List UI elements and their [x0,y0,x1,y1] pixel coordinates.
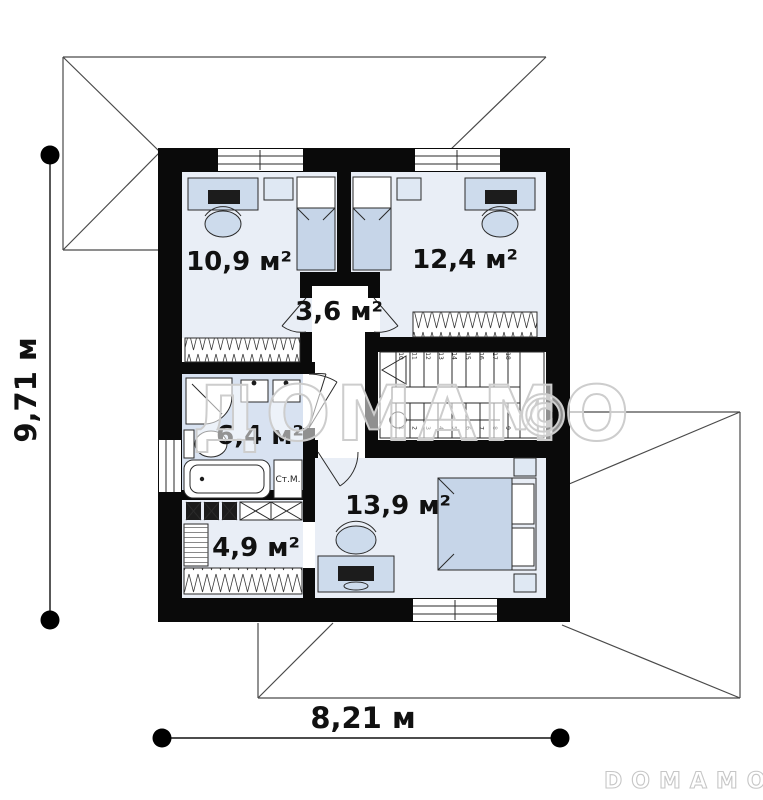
room-label-wardrobe: 4,9 м² [212,533,300,563]
closet-bedroom2-hatch [413,312,537,337]
laptop-1 [208,190,240,204]
dimension-width: 8,21 м [153,701,570,748]
stair-step-number: 17 [491,352,498,360]
laptop-2 [485,190,517,204]
room-label-hall: 3,6 м² [295,297,383,327]
dimension-dot [41,611,60,630]
stair-step-number: 13 [437,352,444,360]
nightstand-2 [397,178,421,200]
watermark: ДОМАМО © [192,369,635,458]
window-left [159,440,181,492]
chair-1 [205,211,241,237]
floor-plan-drawing: 9,71 м 8,21 м [0,0,763,800]
bathtub [184,460,270,498]
wall-stair-top [378,337,546,352]
bed-2-blanket [353,208,391,270]
floor-plan-page: 9,71 м 8,21 м [0,0,763,800]
dimension-width-label: 8,21 м [310,701,415,735]
stair-step-number: 18 [504,352,511,360]
dimension-dot [551,729,570,748]
wardrobe-rail-hatch [184,568,302,594]
wall-hall-stub-right [351,272,380,286]
wall-wardrobe-right-low [303,568,315,598]
single-bed-1 [297,177,335,270]
closet-bedroom1-hatch [185,338,300,362]
single-bed-2 [353,177,391,270]
chair-2 [482,211,518,237]
stair-step-number: 16 [477,352,484,360]
dimension-dot [153,729,172,748]
wall-beds-divider [337,172,351,286]
bed-1-blanket [297,208,335,270]
stair-step-number: 11 [410,352,417,360]
nightstand-3a [514,458,536,476]
double-bed-pillow-bottom [512,528,534,566]
bathtub-drain [200,477,204,481]
chair-3 [336,526,376,554]
brand-logo: DOMAMO [604,769,763,794]
stair-step-number: 12 [424,352,431,360]
wall-bottom [158,598,570,622]
dimension-dot [41,146,60,165]
stair-step-number: 10 [397,352,404,360]
wall-left [158,148,182,622]
wardrobe-side-shelves-hatch [184,524,208,566]
washing-machine-label: Ст.М. [275,475,300,485]
wall-hall-stub-left [300,272,337,286]
double-bed [438,478,536,570]
nightstand-1 [264,178,293,200]
nightstand-3b [514,574,536,592]
room-label-bedroom-top-left: 10,9 м² [186,247,292,277]
watermark-copyright-icon: © [514,382,572,450]
bed-2-pillow [353,177,391,208]
double-bed-pillow-top [512,484,534,524]
stair-step-number: 15 [464,352,471,360]
room-label-bedroom-top-right: 12,4 м² [412,245,518,275]
stair-step-number: 14 [451,352,458,360]
laptop-3 [338,566,374,581]
stair-step-numbers-upper: 101112131415161718 [397,352,511,360]
dimension-height-label: 9,71 м [9,337,43,442]
room-label-bedroom-bottom: 13,9 м² [345,491,451,521]
dimension-height: 9,71 м [9,146,60,630]
bed-1-pillow [297,177,335,208]
